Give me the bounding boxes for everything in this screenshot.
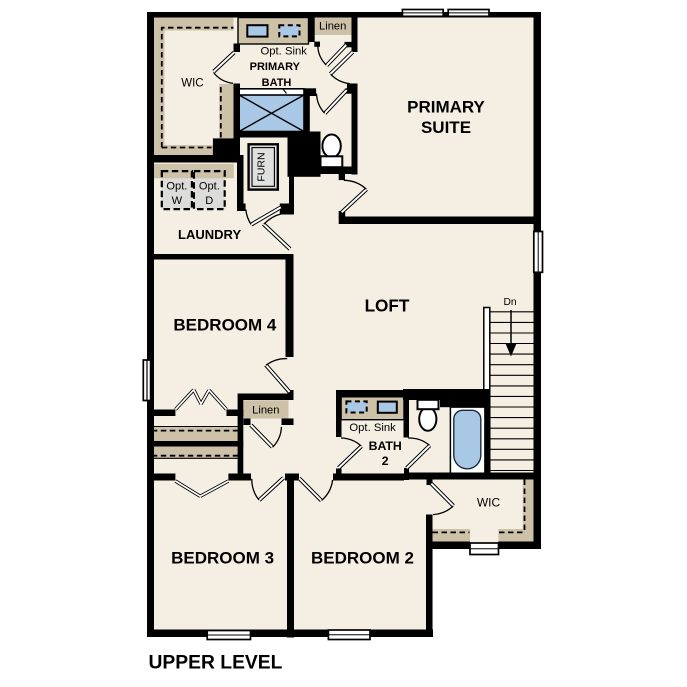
svg-text:D: D <box>205 195 213 207</box>
svg-text:UPPER LEVEL: UPPER LEVEL <box>149 653 283 674</box>
svg-text:PRIMARY: PRIMARY <box>250 61 301 73</box>
svg-text:BATH: BATH <box>262 77 292 89</box>
svg-text:W: W <box>172 195 183 207</box>
svg-text:Linen: Linen <box>252 404 279 416</box>
svg-text:WIC: WIC <box>477 496 501 510</box>
svg-text:BEDROOM 2: BEDROOM 2 <box>311 549 414 568</box>
svg-text:Opt.: Opt. <box>166 181 187 193</box>
svg-text:Opt. Sink: Opt. Sink <box>349 422 396 434</box>
svg-text:Linen: Linen <box>319 21 346 33</box>
svg-text:2: 2 <box>382 454 389 468</box>
svg-text:SUITE: SUITE <box>421 118 471 137</box>
svg-text:Opt.: Opt. <box>199 181 220 193</box>
svg-text:LOFT: LOFT <box>365 296 410 316</box>
svg-text:Opt. Sink: Opt. Sink <box>260 45 307 57</box>
svg-text:BEDROOM 4: BEDROOM 4 <box>173 316 277 335</box>
svg-text:BATH: BATH <box>369 439 402 453</box>
svg-text:WIC: WIC <box>181 77 203 89</box>
svg-text:Dn: Dn <box>504 297 517 308</box>
svg-text:PRIMARY: PRIMARY <box>407 98 485 117</box>
svg-text:BEDROOM 3: BEDROOM 3 <box>171 549 274 568</box>
svg-text:FURN: FURN <box>256 152 268 181</box>
svg-text:LAUNDRY: LAUNDRY <box>178 227 241 242</box>
